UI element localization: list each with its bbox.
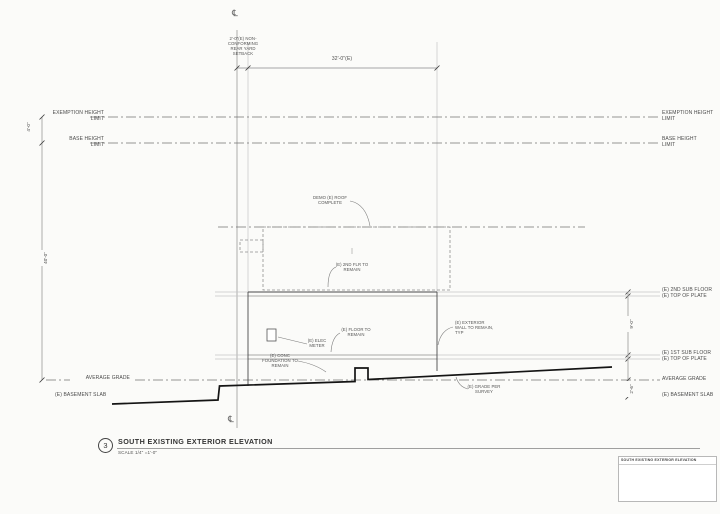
grade-survey-note: (E) GRADE PER SURVEY [464, 385, 504, 395]
building-width-dimension: 32'-0"(E) [317, 57, 367, 63]
average-grade-label-left: AVERAGE GRADE [58, 376, 130, 382]
leader-exterior-wall [438, 327, 453, 345]
label-line: (E) TOP OF PLATE [662, 294, 720, 300]
floor-remain-note: (E) FLOOR TO REMAIN [338, 328, 374, 338]
label-line: LIMIT [662, 143, 720, 149]
note-line: REMAIN [334, 268, 370, 273]
exemption-height-label-right: EXEMPTION HEIGHT LIMIT [662, 111, 720, 122]
second-floor-label-right: (E) 2ND SUB FLOOR (E) TOP OF PLATE [662, 288, 720, 299]
title-block: SOUTH EXISTING EXTERIOR ELEVATION [618, 456, 717, 502]
note-line: REMAIN [338, 333, 374, 338]
average-grade-label-right: AVERAGE GRADE [662, 377, 720, 383]
foundation-remain-note: (E) CONC FOUNDATION TO REMAIN [258, 354, 302, 369]
setback-dimension-note: 2'-0"(E) NON- CONFORMING REAR YARD SETBA… [221, 37, 265, 57]
setback-line: SETBACK [221, 52, 265, 57]
leader-lines [278, 201, 468, 389]
note-line: TYP [455, 331, 501, 336]
demo-roof-note: DEMO (E) ROOF COMPLETE [308, 196, 352, 206]
elevation-linework [0, 0, 720, 514]
note-line: METER [303, 344, 331, 349]
drawing-number-bubble: 3 [98, 438, 113, 453]
leader-foundation [298, 361, 326, 372]
exterior-wall-remain-note: (E) EXTERIOR WALL TO REMAIN, TYP [455, 321, 501, 336]
label-line: LIMIT [662, 117, 720, 123]
second-floor-remain-note: (E) 2ND FLR TO REMAIN [334, 263, 370, 273]
floor-height-dimension: 9'-0" [620, 316, 642, 332]
dimension-ticks [40, 66, 631, 400]
grade-profile-line [112, 367, 612, 404]
label-line: (E) TOP OF PLATE [662, 357, 720, 363]
height-limit-dimension: 40'-0" [32, 250, 58, 266]
demo-roof-outline [240, 227, 450, 290]
basement-slab-label-left: (E) BASEMENT SLAB [55, 393, 135, 399]
exemption-height-label-left: EXEMPTION HEIGHT LIMIT [38, 111, 104, 122]
note-line: SURVEY [464, 390, 504, 395]
leader-demo-roof [350, 201, 370, 226]
basement-slab-label-right: (E) BASEMENT SLAB [662, 393, 720, 399]
label-line: LIMIT [38, 117, 104, 123]
drawing-title: SOUTH EXISTING EXTERIOR ELEVATION [118, 437, 273, 446]
floor-level-lines [215, 292, 660, 359]
first-floor-label-right: (E) 1ST SUB FLOOR (E) TOP OF PLATE [662, 351, 720, 362]
property-line-symbol-bottom: ℄ [228, 414, 234, 425]
extension-lines [248, 42, 437, 292]
label-line: LIMIT [38, 143, 104, 149]
elec-meter-box [267, 329, 276, 341]
slab-depth-dimension: 2'-6" [622, 381, 640, 397]
base-height-label-right: BASE HEIGHT LIMIT [662, 137, 720, 148]
elevation-sheet: ℄ ℄ 2'-0"(E) NON- CONFORMING REAR YARD S… [0, 0, 720, 514]
base-height-label-left: BASE HEIGHT LIMIT [38, 137, 104, 148]
height-limit-lines [46, 117, 660, 380]
note-line: REMAIN [258, 364, 302, 369]
note-line: COMPLETE [308, 201, 352, 206]
property-line-symbol-top: ℄ [232, 8, 238, 19]
elec-meter-note: (E) ELEC METER [303, 339, 331, 349]
demo-roof-projection [240, 240, 263, 252]
title-block-header: SOUTH EXISTING EXTERIOR ELEVATION [619, 457, 716, 465]
drawing-scale: SCALE 1/4" =1'-0" [118, 450, 157, 455]
exemption-gap-dimension: 4'-0" [20, 119, 36, 135]
